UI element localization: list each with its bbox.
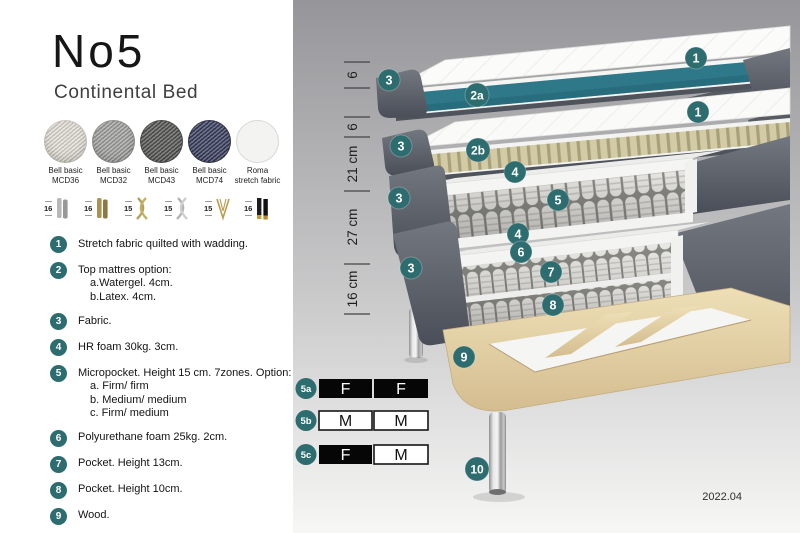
- svg-text:8: 8: [550, 299, 557, 313]
- fabric-color-dot: [140, 120, 183, 163]
- fabric-swatches: Bell basicMCD36 Bell basicMCD32 Bell bas…: [0, 120, 293, 185]
- callout-3: 3: [400, 257, 422, 279]
- feature-number: 4: [50, 339, 67, 356]
- callout-4: 4: [504, 161, 526, 183]
- measurement-leg: 16 cm: [345, 271, 360, 308]
- version-label: 2022.04: [702, 491, 742, 503]
- leg-options: 16 16 15 15 15 16: [0, 185, 293, 221]
- fabric-swatch: Bell basicMCD36: [42, 120, 89, 185]
- product-sheet: No5 Continental Bed Bell basicMCD36 Bell…: [0, 0, 800, 533]
- fabric-swatch: Bell basicMCD74: [186, 120, 233, 185]
- fabric-label: Bell basicMCD74: [186, 166, 233, 185]
- leg-option: 16: [244, 195, 283, 221]
- callout-3: 3: [390, 135, 412, 157]
- svg-text:2a: 2a: [470, 89, 484, 103]
- feature-item: 7 Pocket. Height 13cm.: [50, 456, 287, 473]
- brass-cylinder-leg-icon: [93, 195, 113, 221]
- callout-1: 1: [687, 101, 709, 123]
- svg-text:5a: 5a: [301, 384, 312, 395]
- svg-text:2b: 2b: [471, 144, 485, 158]
- fabric-color-dot: [188, 120, 231, 163]
- svg-text:1: 1: [693, 52, 700, 66]
- feature-item: 8 Pocket. Height 10cm.: [50, 482, 287, 499]
- svg-text:1: 1: [695, 106, 702, 120]
- svg-text:F: F: [341, 381, 351, 398]
- svg-text:5b: 5b: [300, 416, 311, 427]
- svg-text:4: 4: [512, 166, 519, 180]
- fabric-label: Bell basicMCD43: [138, 166, 185, 185]
- feature-item: 9 Wood.: [50, 508, 287, 525]
- fabric-color-dot: [236, 120, 279, 163]
- gold-hairpin-leg-icon: [213, 195, 233, 221]
- firmness-table: 5a F F 5b M M 5c: [296, 378, 429, 465]
- callout-6: 6: [510, 241, 532, 263]
- fabric-swatch: Bell basicMCD32: [90, 120, 137, 185]
- feature-number: 7: [50, 456, 67, 473]
- svg-text:6: 6: [518, 246, 525, 260]
- info-panel: No5 Continental Bed Bell basicMCD36 Bell…: [0, 0, 293, 533]
- feature-number: 5: [50, 365, 67, 382]
- silver-twisted-leg-icon: [173, 195, 193, 221]
- black-gold-leg-icon: [253, 195, 273, 221]
- callout-8: 8: [542, 294, 564, 316]
- feature-number: 8: [50, 482, 67, 499]
- chrome-cylinder-leg-icon: [53, 195, 73, 221]
- svg-text:3: 3: [398, 140, 405, 154]
- svg-text:3: 3: [408, 262, 415, 276]
- feature-number: 6: [50, 430, 67, 447]
- feature-number: 9: [50, 508, 67, 525]
- leg-option: 16: [84, 195, 123, 221]
- gold-twisted-leg-icon: [133, 195, 153, 221]
- callout-10: 10: [465, 457, 489, 481]
- fabric-label: Bell basicMCD36: [42, 166, 89, 185]
- svg-text:4: 4: [515, 228, 522, 242]
- callout-2b: 2b: [466, 138, 490, 162]
- svg-text:M: M: [394, 447, 407, 464]
- callout-1: 1: [685, 47, 707, 69]
- callout-3: 3: [378, 69, 400, 91]
- measurement-base: 27 cm: [345, 209, 360, 246]
- callout-3: 3: [388, 187, 410, 209]
- feature-item: 2 Top mattres option:a.Watergel. 4cm.b.L…: [50, 262, 287, 304]
- leg-option: 15: [124, 195, 163, 221]
- feature-item: 5 Micropocket. Height 15 cm. 7zones. Opt…: [50, 365, 287, 421]
- cutaway-diagram-panel: 6 6 21 cm 27 cm 16 cm: [293, 0, 800, 533]
- fabric-color-dot: [92, 120, 135, 163]
- leg-option: 15: [204, 195, 243, 221]
- page-title: No5: [52, 24, 293, 78]
- measurement-topper2: 6: [345, 123, 360, 131]
- bed-cutaway-illustration: 6 6 21 cm 27 cm 16 cm: [293, 0, 800, 533]
- measurement-topper: 6: [345, 71, 360, 79]
- callout-2a: 2a: [465, 83, 489, 107]
- fabric-swatch: Bell basicMCD43: [138, 120, 185, 185]
- svg-text:F: F: [341, 447, 351, 464]
- feature-item: 4 HR foam 30kg. 3cm.: [50, 339, 287, 356]
- svg-text:5c: 5c: [301, 450, 312, 461]
- feature-item: 3 Fabric.: [50, 313, 287, 330]
- svg-text:3: 3: [386, 74, 393, 88]
- page-subtitle: Continental Bed: [54, 82, 293, 104]
- feature-number: 1: [50, 236, 67, 253]
- svg-text:10: 10: [470, 463, 484, 477]
- feature-number: 3: [50, 313, 67, 330]
- measurement-mattress: 21 cm: [345, 146, 360, 183]
- leg-option: 16: [44, 195, 83, 221]
- feature-number: 2: [50, 262, 67, 279]
- feature-item: 1 Stretch fabric quilted with wadding.: [50, 236, 287, 253]
- leg-option: 15: [164, 195, 203, 221]
- fabric-label: Bell basicMCD32: [90, 166, 137, 185]
- svg-text:7: 7: [548, 266, 555, 280]
- feature-item: 6 Polyurethane foam 25kg. 2cm.: [50, 430, 287, 447]
- svg-text:9: 9: [461, 351, 468, 365]
- fabric-color-dot: [44, 120, 87, 163]
- svg-text:M: M: [339, 413, 352, 430]
- callout-7: 7: [540, 261, 562, 283]
- svg-text:5: 5: [555, 194, 562, 208]
- callout-5: 5: [547, 189, 569, 211]
- callout-9: 9: [453, 346, 475, 368]
- fabric-label: Romastretch fabric: [234, 166, 281, 185]
- svg-text:3: 3: [396, 192, 403, 206]
- svg-text:M: M: [394, 413, 407, 430]
- feature-list: 1 Stretch fabric quilted with wadding. 2…: [0, 221, 293, 533]
- fabric-swatch: Romastretch fabric: [234, 120, 281, 185]
- svg-text:F: F: [396, 381, 406, 398]
